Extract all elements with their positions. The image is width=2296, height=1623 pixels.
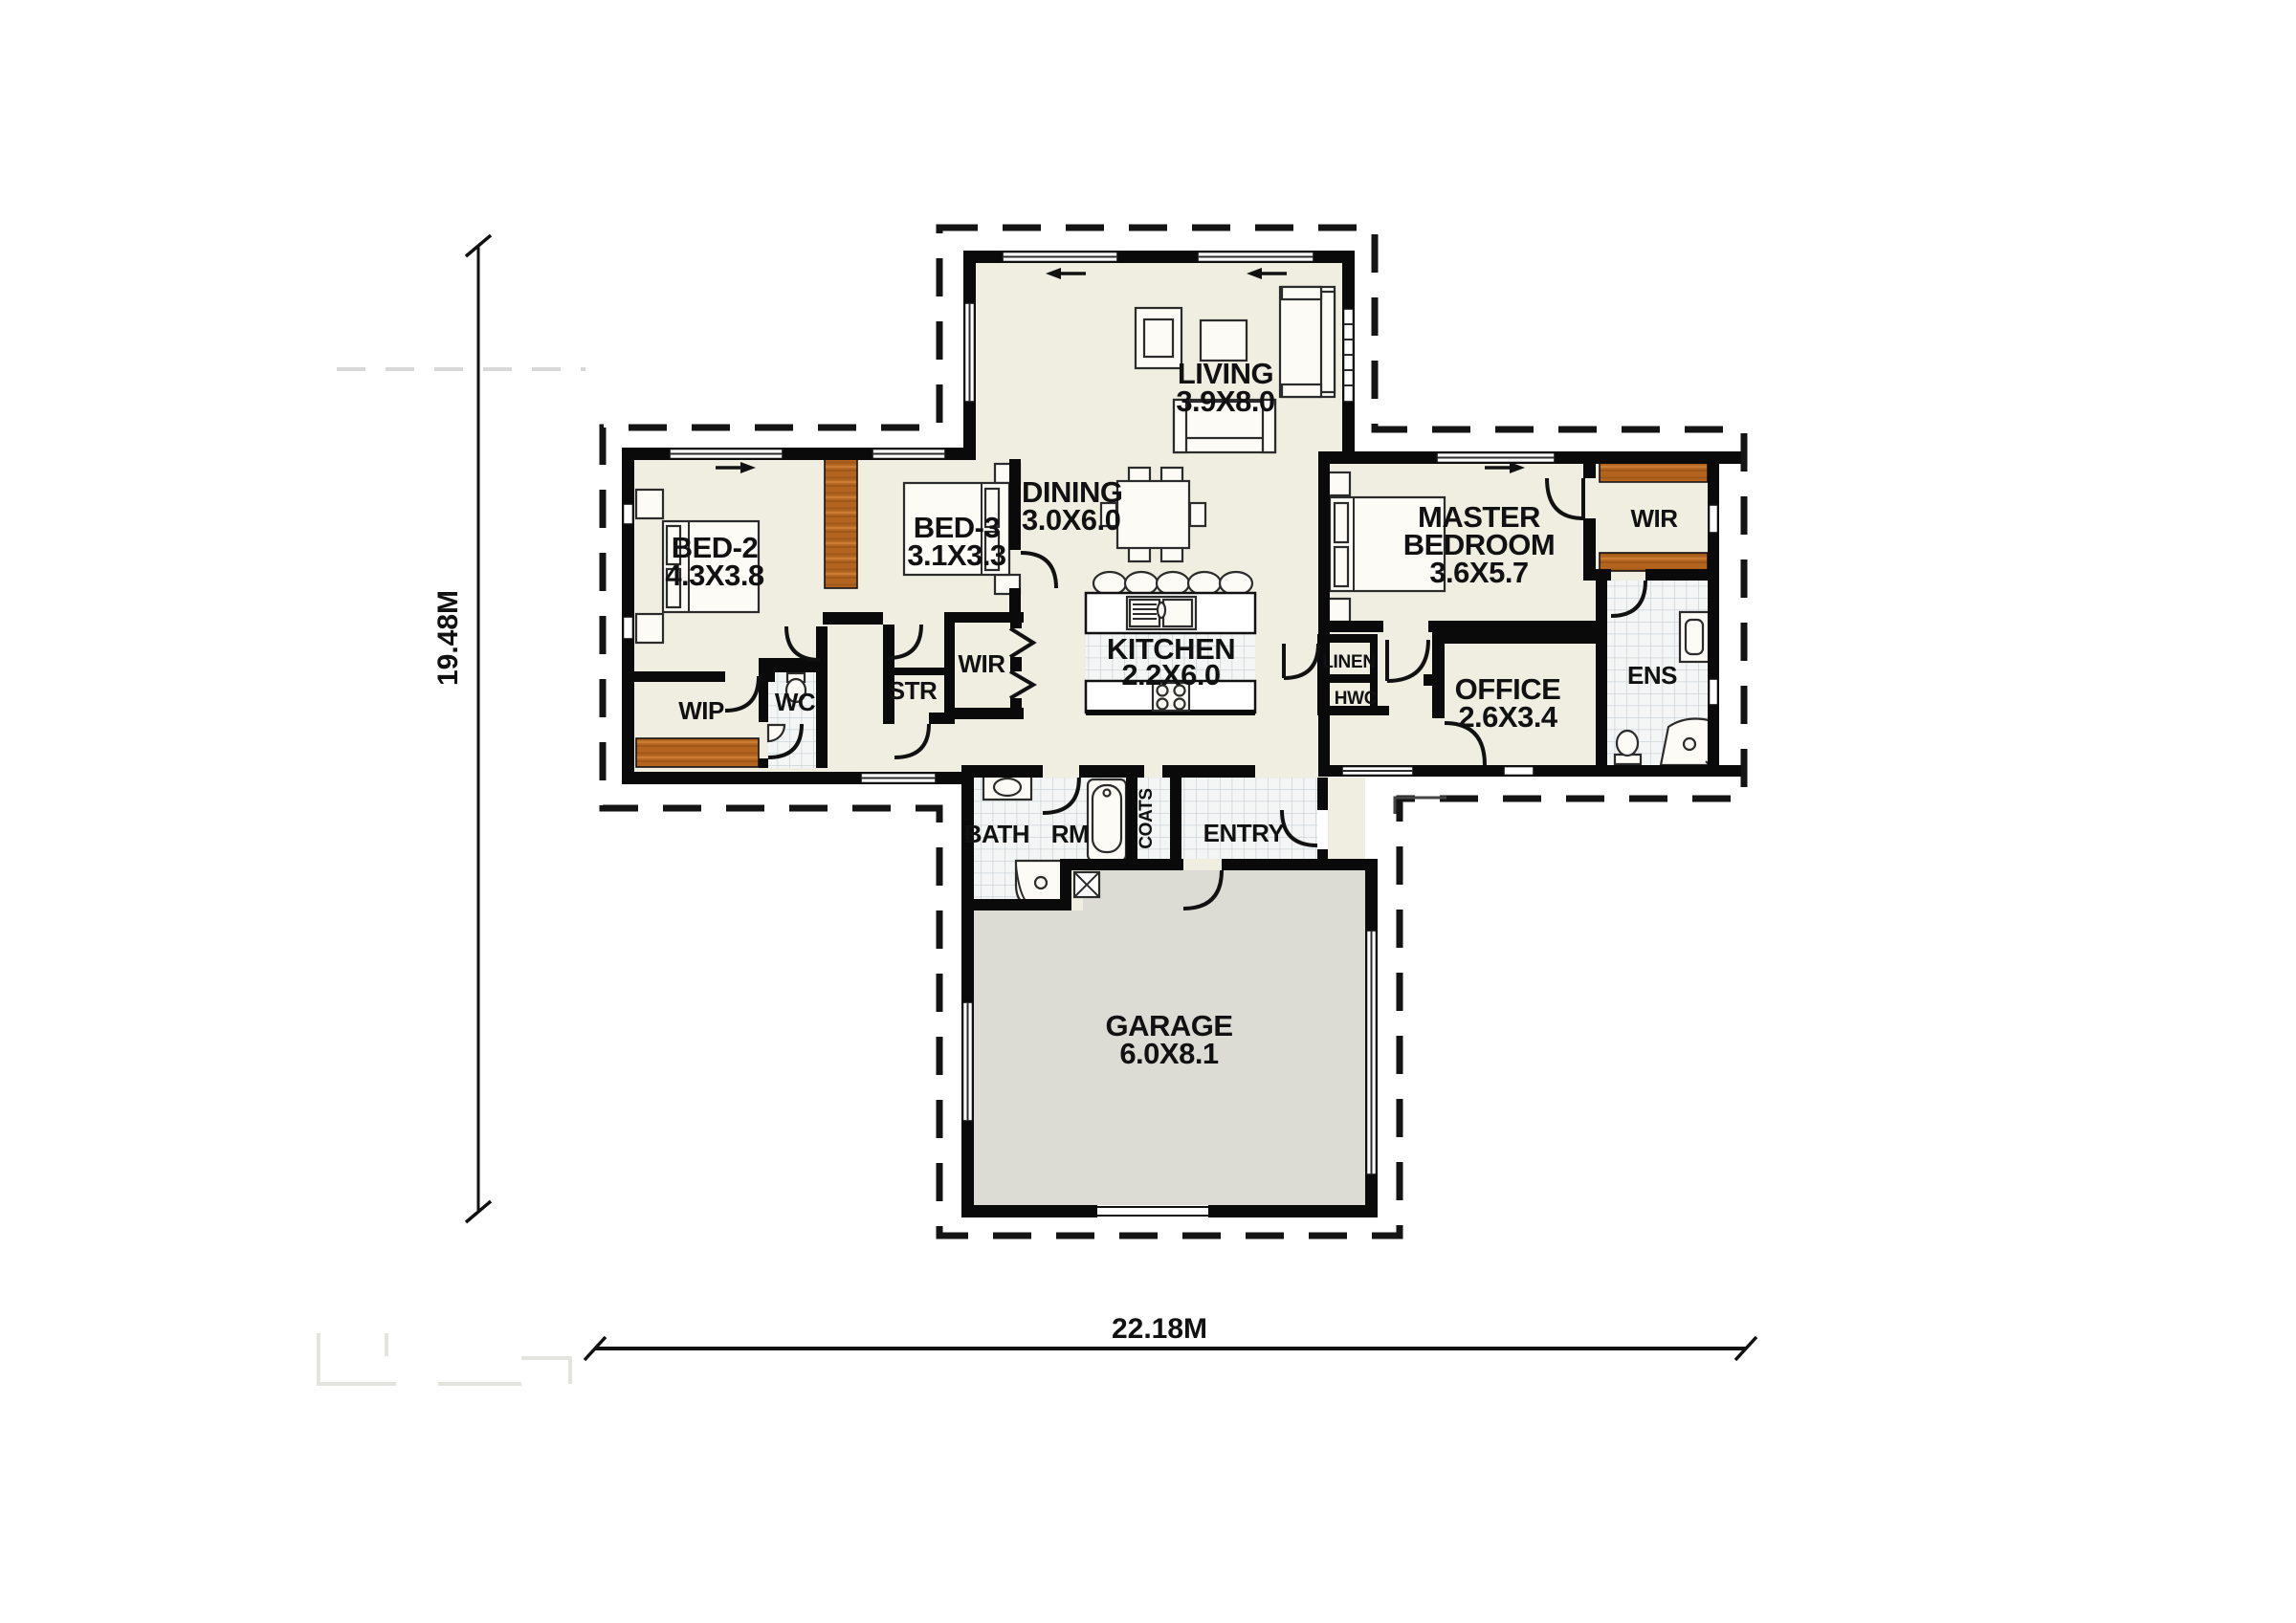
stool-icon bbox=[1188, 572, 1221, 595]
dimension-width-label: 22.18M bbox=[1112, 1313, 1207, 1345]
wc-label: WC bbox=[775, 688, 816, 716]
dining-size: 3.0X6.0 bbox=[1022, 503, 1120, 537]
linen-label: LINEN bbox=[1322, 652, 1376, 672]
pillow-icon bbox=[1335, 547, 1348, 586]
floor-plan-page: LIVING 3.9X8.0 DINING 3.0X6.0 KITCHEN 2.… bbox=[0, 0, 2296, 1623]
armchair-cushion-icon bbox=[1144, 319, 1173, 357]
dimension-height-label: 19.48M bbox=[432, 590, 464, 686]
bed2-size: 4.3X3.8 bbox=[665, 559, 764, 592]
hwc-label: HWC bbox=[1335, 689, 1378, 709]
garage-door bbox=[1097, 1205, 1208, 1217]
kitchen-sink-icon bbox=[1127, 597, 1196, 629]
wip-pantry-shelf bbox=[636, 738, 759, 767]
nightstand-icon bbox=[636, 614, 663, 643]
stool-icon bbox=[1220, 572, 1252, 595]
ens-shower-icon bbox=[1661, 719, 1711, 767]
stool-icon bbox=[1157, 572, 1189, 595]
wir-left-label: WIR bbox=[958, 649, 1005, 678]
bath-door-opening bbox=[1043, 765, 1079, 778]
wir-robe-top bbox=[1600, 463, 1708, 482]
office-door-opening bbox=[1432, 718, 1445, 765]
bed3-robe bbox=[825, 457, 857, 588]
bath-shower-icon bbox=[1016, 861, 1064, 906]
wir-right-label: WIR bbox=[1630, 504, 1678, 533]
master-size: 3.6X5.7 bbox=[1429, 556, 1528, 589]
entry-door-opening bbox=[1317, 810, 1328, 849]
bathtub-icon bbox=[1088, 779, 1126, 861]
nightstand-icon bbox=[636, 490, 663, 518]
wip-label: WIP bbox=[678, 696, 724, 725]
living-size: 3.9X8.0 bbox=[1176, 384, 1274, 418]
garage-size: 6.0X8.1 bbox=[1119, 1037, 1219, 1070]
entry-label: ENTRY bbox=[1203, 819, 1285, 847]
kitchen-size: 2.2X6.0 bbox=[1121, 658, 1220, 691]
stool-icon bbox=[1125, 572, 1158, 595]
bath-vanity-icon bbox=[983, 775, 1031, 800]
dining-chair-icon bbox=[1190, 503, 1205, 526]
side-table-icon bbox=[1201, 320, 1247, 361]
toilet-icon bbox=[1615, 731, 1641, 764]
office-size: 2.6X3.4 bbox=[1458, 700, 1558, 734]
bath-label: BATH RM bbox=[964, 820, 1089, 848]
coats-label: COATS bbox=[1137, 788, 1157, 849]
pillow-icon bbox=[1335, 503, 1348, 542]
stacker-door-window bbox=[1344, 309, 1354, 402]
coats-opening bbox=[1144, 765, 1162, 778]
bed3-size: 3.1X3.3 bbox=[907, 538, 1006, 572]
dining-table-icon bbox=[1117, 481, 1189, 548]
wir-robe-bottom bbox=[1600, 553, 1708, 571]
str-label: STR bbox=[889, 676, 938, 705]
sofa-right-icon bbox=[1280, 287, 1335, 397]
floor-plan-svg: LIVING 3.9X8.0 DINING 3.0X6.0 KITCHEN 2.… bbox=[0, 0, 2296, 1623]
stool-icon bbox=[1093, 572, 1126, 595]
ens-vanity-icon bbox=[1680, 612, 1709, 662]
garage-tub-icon bbox=[1074, 872, 1099, 897]
ens-label: ENS bbox=[1627, 661, 1677, 690]
